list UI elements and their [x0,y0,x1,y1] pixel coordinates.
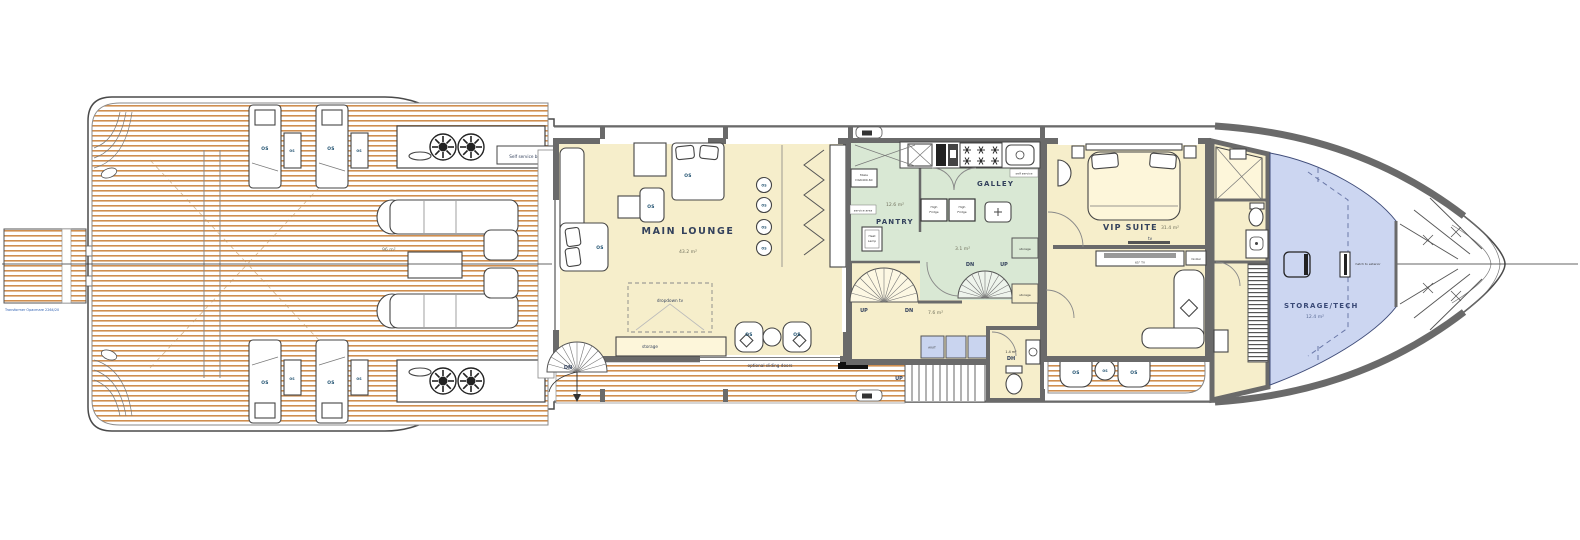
up-label: UP [1000,262,1008,268]
day-head-area: 1.4 m² [1005,350,1017,354]
self-service-label: self service [1016,172,1033,176]
minibar-label: minibar [1191,257,1202,261]
vip-suite: VIP SUITE 31.4 m² tv 65" TV minibar [1044,136,1208,359]
grill-console-bottom [397,360,545,402]
lounge-storage-cabinet: storage [616,337,726,356]
high-fridge-label: Fridge [929,210,938,214]
os-label: OS [745,332,753,338]
storage-label: storage [1019,293,1031,297]
companionway-ladder [1248,264,1268,362]
vip-suite-label: VIP SUITE [1103,223,1158,232]
toilet [1006,374,1022,394]
high-fridge-label: High [959,205,966,209]
pantry-label: PANTRY [876,218,914,226]
lounge-cabinet [634,143,666,176]
os-label: OS [327,380,335,386]
av-it-label: AV/IT [928,346,936,350]
galley-label: GALLEY [977,180,1014,188]
os-label: OS [596,245,604,251]
service-area-label: service area [854,209,873,213]
nightstand [1072,146,1084,158]
window-top [726,135,838,144]
os-label: OS [327,146,335,152]
cooktop [960,143,1002,167]
os-label: OS [289,149,295,153]
vip-area-label: 31.4 m² [1161,225,1179,231]
high-fridge-label: High [931,205,938,209]
hatch-to-exterior-label: hatch to exterior [1355,262,1381,266]
swim-platform: Transformer Opacmare 2264/20 [4,229,94,312]
grill-burner-icon [430,134,456,160]
os-label: OS [761,204,767,208]
vip-bathroom [1212,141,1268,400]
tv-label: tv [1148,236,1153,241]
os-label: OS [761,226,767,230]
heat-lamp-label: Lamp [868,239,876,243]
os-label: OS [1130,370,1138,376]
service-area-tag: service area [850,205,876,214]
vip-minibar: minibar [1186,251,1206,265]
lounge-sofa-top [672,143,724,200]
coffee-machine [936,144,946,166]
aft-deck-area-label: 96 m² [382,247,396,253]
main-lounge-area: 43.2 m² [679,249,697,255]
tv-65-label: 65" TV [1135,261,1146,265]
vip-tv-cabinet: 65" TV [1096,251,1184,266]
grill-burner-icon [430,368,456,394]
heat-lamp-label: Heat [868,234,876,238]
tv-bar [1128,241,1170,244]
up-label: UP [895,376,903,382]
day-head-label: DH [1007,356,1015,362]
deck-plan-drawing: Transformer Opacmare 2264/20 OS OS OS OS… [0,0,1580,540]
deck-coffee-table [408,252,462,278]
lounge-side-table [618,196,640,218]
os-label: OS [356,149,362,153]
boarding-stairs: UP [895,362,985,402]
os-label: OS [1102,369,1108,373]
os-label: OS [684,173,692,179]
toilet-tank [1006,366,1022,373]
transformer-label: Transformer Opacmare 2264/20 [4,308,59,312]
pantry-area-label: 12.6 m² [886,202,904,208]
os-label: OS [356,377,362,381]
toilet [1249,208,1263,226]
os-label: OS [761,184,767,188]
storage-locker-lower: storage [1012,284,1038,303]
washbasin [1026,340,1040,364]
dn-label: DN [966,262,974,268]
av-it-cabinets: AV/IT [921,336,988,358]
os-label: OS [261,380,269,386]
corridor-area-label: 7.6 m² [928,310,943,316]
pantry-appliance-miele: Miele DG6400-60 [851,169,877,187]
main-lounge-label: MAIN LOUNGE [642,226,735,237]
high-fridge-label: Fridge [957,210,966,214]
day-head: 1.4 m² DH [988,328,1042,400]
storage-label: storage [642,344,658,349]
galley-counter [900,142,1040,168]
miele-label: DG6400-60 [855,178,872,182]
self-service-bar-label: Self service bar [509,154,542,159]
dropdown-tv-label: dropdown tv [657,298,684,303]
landing-area-label: 3.1 m² [955,246,970,252]
galley-sink [1006,145,1034,165]
deck-hatch-narrow [1340,252,1350,277]
storage-locker-upper: storage [1012,238,1038,258]
vanity-sink [1246,230,1268,258]
dn-label: DN [564,365,572,371]
grill-burner-icon [458,368,484,394]
os-label: OS [761,247,767,251]
os-label: OS [261,146,269,152]
os-label: OS [793,332,801,338]
nightstand [1184,146,1196,158]
miele-label: Miele [860,173,868,177]
dn-label: DN [905,308,913,314]
yacht-main-deck-plan: Transformer Opacmare 2264/20 OS OS OS OS… [0,0,1580,540]
up-label: UP [860,308,868,314]
bath-cabinet [1214,330,1228,352]
deck-door-opening [552,200,560,330]
grill-burner-icon [458,134,484,160]
main-lounge: OS OS OS OS OS OS OS MAIN LOUNGE 43.2 m² [552,135,850,363]
microwave [985,202,1011,222]
grill-console-top: Self service bar [397,126,554,168]
os-label: OS [289,377,295,381]
self-service-hatch: self service [1010,169,1038,177]
storage-tech-area: 12.4 m² [1306,314,1324,320]
storage-tech-label: STORAGE/TECH [1284,302,1359,310]
heat-lamp: Heat Lamp [862,227,882,251]
os-label: OS [647,204,655,210]
storage-label: storage [1019,247,1031,251]
optional-sliding-doors-label: optional sliding doors [748,363,793,368]
os-label: OS [1072,370,1080,376]
